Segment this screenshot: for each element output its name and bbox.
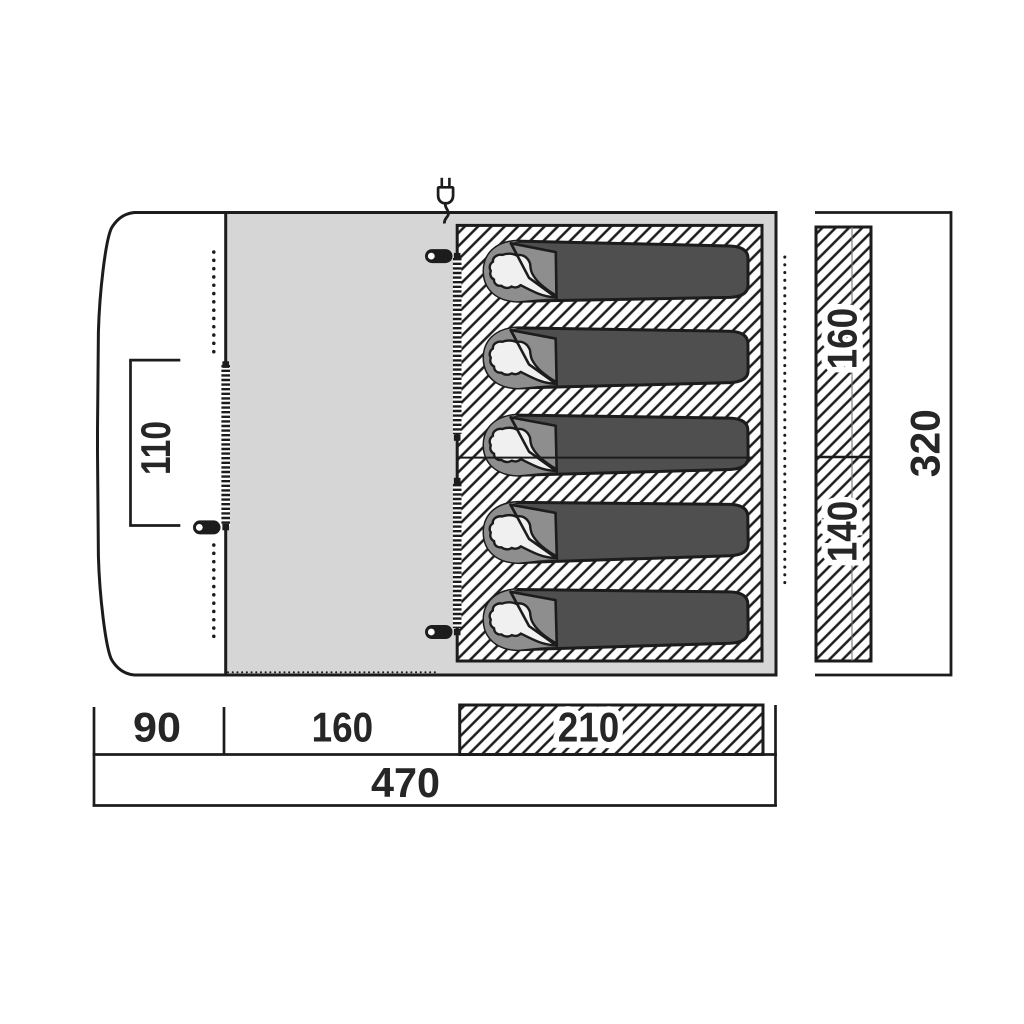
svg-text:160: 160 <box>312 704 374 751</box>
svg-text:160: 160 <box>819 308 866 370</box>
svg-text:210: 210 <box>558 704 620 751</box>
svg-text:110: 110 <box>132 421 179 475</box>
svg-text:90: 90 <box>133 704 181 751</box>
svg-text:140: 140 <box>819 501 866 563</box>
svg-text:470: 470 <box>371 759 440 806</box>
svg-text:320: 320 <box>901 409 948 477</box>
